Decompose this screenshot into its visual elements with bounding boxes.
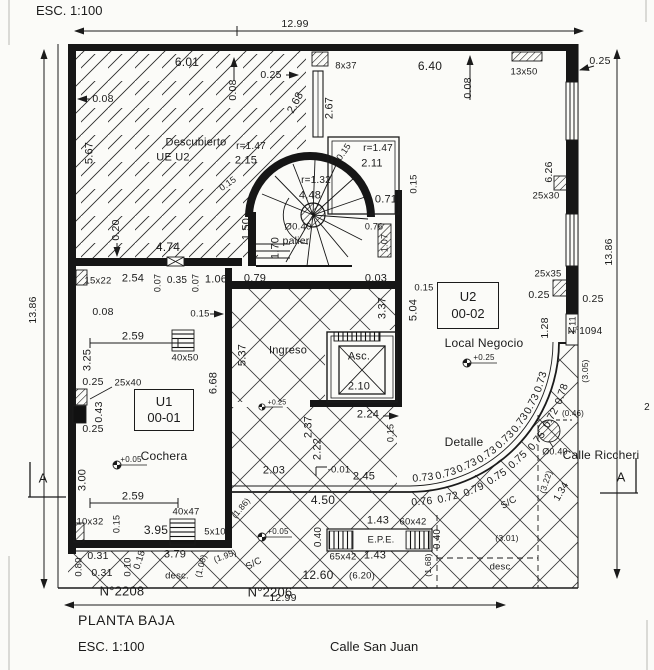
dim-label: 2.10 <box>348 382 370 393</box>
dim-label: 0.25 <box>82 377 103 388</box>
dim-label: 0.73 <box>412 472 434 485</box>
dim-label: 0.76 <box>411 496 433 508</box>
dim-label: (3.01) <box>495 534 518 543</box>
dim-label: (0.46) <box>562 410 584 418</box>
scale-note-bottom: ESC. 1:100 <box>78 639 145 654</box>
dim-label: Detalle <box>445 436 484 448</box>
dim-label: 1.07 <box>381 234 390 252</box>
dim-label: +0.05 <box>120 456 141 464</box>
plan-title: PLANTA BAJA <box>78 612 175 628</box>
dim-label: 4.74 <box>156 241 180 253</box>
dim-label: 3.79 <box>164 550 186 561</box>
dim-label: +0.25 <box>473 354 494 362</box>
dim-label: 15x22 <box>85 276 112 286</box>
dim-label: 0.25 <box>260 70 281 81</box>
dim-label: palier <box>283 236 310 247</box>
dim-label: Descubierto <box>166 138 227 149</box>
unit-code: 00-02 <box>451 306 484 322</box>
dim-label: 4.48 <box>299 191 321 202</box>
dim-label: desc <box>490 562 511 572</box>
dim-label: 6.01 <box>175 56 199 68</box>
dim-label: 0.71 <box>375 195 397 206</box>
dim-label: 2.59 <box>122 332 144 343</box>
dim-label: 6.40 <box>418 60 442 72</box>
dim-label: 2.59 <box>122 492 144 503</box>
dim-label: 0.08 <box>228 79 239 100</box>
dim-label: 2.24 <box>357 410 379 421</box>
dim-label: 2.03 <box>263 466 285 477</box>
dim-label: 2.67 <box>325 97 336 119</box>
dim-label: 12.99 <box>269 593 296 604</box>
dim-label: 2 <box>644 403 650 413</box>
dim-label: 0.08 <box>463 77 474 98</box>
dim-label: desc. <box>165 571 189 581</box>
dim-label: 0.03 <box>365 274 387 285</box>
dim-label: 1.70 <box>271 237 282 259</box>
dim-label: Ø0.40 <box>542 448 568 457</box>
dim-label: r=1.47 <box>236 142 266 152</box>
dim-label: r=1.47 <box>363 144 393 154</box>
dim-label: 10x32 <box>77 517 104 527</box>
dim-label: 0.80 <box>74 557 84 576</box>
dim-label: 0.76 <box>365 223 383 232</box>
dim-label: 0.25 <box>589 56 610 67</box>
dim-label: 65x42 <box>330 552 357 562</box>
dim-label: 13.86 <box>28 296 39 323</box>
dim-label: 5.04 <box>409 299 420 321</box>
dim-label: 8x37 <box>335 61 356 71</box>
dim-label: 2.22 <box>313 438 324 460</box>
dim-label: 0.07 <box>154 274 163 292</box>
dim-label: 0.08 <box>92 94 113 105</box>
section-marker-right: A <box>617 471 626 484</box>
dim-label: E.P.E. <box>368 535 395 545</box>
dim-label: 0.25 <box>582 294 603 305</box>
dim-label: 40x47 <box>173 507 200 517</box>
dim-label: 0.07 <box>192 274 201 292</box>
dim-label: 0.15 <box>190 309 209 319</box>
dim-label: 5.67 <box>85 142 96 164</box>
dim-label: 2.15 <box>235 156 257 167</box>
dim-label: Ingreso <box>269 346 307 357</box>
dim-label: 0.15 <box>409 174 419 193</box>
dim-label: 0.08 <box>92 307 113 318</box>
dim-label: 5.37 <box>238 344 249 366</box>
dim-label: 3.95 <box>144 524 168 536</box>
dim-label: 0.15 <box>387 424 396 442</box>
dim-label: 1.28 <box>540 317 551 338</box>
dim-label: -0.01 <box>328 465 351 475</box>
dim-label: 2.11 <box>361 159 382 170</box>
dim-label: 0.31 <box>91 568 112 579</box>
street-name-bottom: Calle San Juan <box>330 639 418 654</box>
dim-label: Ø0.40 <box>285 222 312 232</box>
dim-label: 5x10 <box>204 527 225 537</box>
dim-label: +0.05 <box>267 528 288 536</box>
dim-label: 25x35 <box>535 269 562 279</box>
dim-label: +0.25 <box>268 400 287 407</box>
dim-label: 25x40 <box>115 378 142 388</box>
unit-tag-u1: U1 00-01 <box>134 389 194 431</box>
dim-label: 0.25 <box>82 424 103 435</box>
dim-label: UE U2 <box>156 153 189 164</box>
dim-label: 0.15 <box>113 515 122 533</box>
dim-label: (6.20) <box>349 571 375 581</box>
dim-label: 2.45 <box>353 472 375 483</box>
dim-label: 4.50 <box>311 494 335 506</box>
dim-label: 0.43 <box>94 401 105 422</box>
dim-label: 2.54 <box>122 274 144 285</box>
unit-tag-u2: U2 00-02 <box>437 282 499 329</box>
unit-code: 00-01 <box>147 410 180 426</box>
dim-label: r=1.32 <box>301 176 331 186</box>
room-name-local-negocio: Local Negocio <box>445 337 524 349</box>
dim-label: 0.20 <box>111 219 122 240</box>
dim-label: 1.43 <box>364 551 386 562</box>
dim-label: 3.25 <box>83 349 94 371</box>
dim-label: 0.40 <box>433 529 443 549</box>
dim-label: 0.15 <box>414 283 433 293</box>
section-marker-left: A <box>39 472 48 485</box>
dim-label: 12.60 <box>302 569 333 581</box>
dim-label: 6.68 <box>209 372 220 394</box>
dim-label: 1.50 <box>242 218 253 240</box>
dim-label: 3.37 <box>378 297 389 319</box>
dim-label: 12.99 <box>281 19 308 30</box>
dim-label: 0.35 <box>167 276 187 286</box>
dim-label: 3.00 <box>78 469 89 491</box>
dim-label: 13.86 <box>604 238 615 265</box>
dim-label: (3.05) <box>581 359 590 382</box>
unit-id: U2 <box>460 289 477 305</box>
scale-note-top: ESC. 1:100 <box>36 3 103 18</box>
dim-label: 25x30 <box>533 191 560 201</box>
dim-label: 2.37 <box>304 416 315 438</box>
dim-label: 0.79 <box>244 274 266 285</box>
dim-label: 1.06 <box>205 275 227 286</box>
dim-label: 0.25 <box>528 290 549 301</box>
dim-label: 40x50 <box>172 353 199 363</box>
room-name-cochera: Cochera <box>141 450 188 462</box>
address-left: N°2208 <box>100 585 145 598</box>
floor-plan-page: ESC. 1:100 PLANTA BAJA ESC. 1:100 Calle … <box>0 0 654 670</box>
dim-label: 60x42 <box>400 517 427 527</box>
dim-label: Asc. <box>348 352 370 363</box>
dim-label: (1.68) <box>424 553 433 576</box>
dim-label: 6.26 <box>544 161 555 182</box>
street-name-right: Calle Riccheri <box>563 449 640 461</box>
dim-label: 13x50 <box>511 67 538 77</box>
unit-id: U1 <box>156 394 173 410</box>
dim-label: 0.40 <box>314 527 324 547</box>
dim-label: 0.31 <box>87 551 108 562</box>
dim-label: 1.11 <box>569 316 578 334</box>
dim-label: 1.43 <box>367 516 389 527</box>
